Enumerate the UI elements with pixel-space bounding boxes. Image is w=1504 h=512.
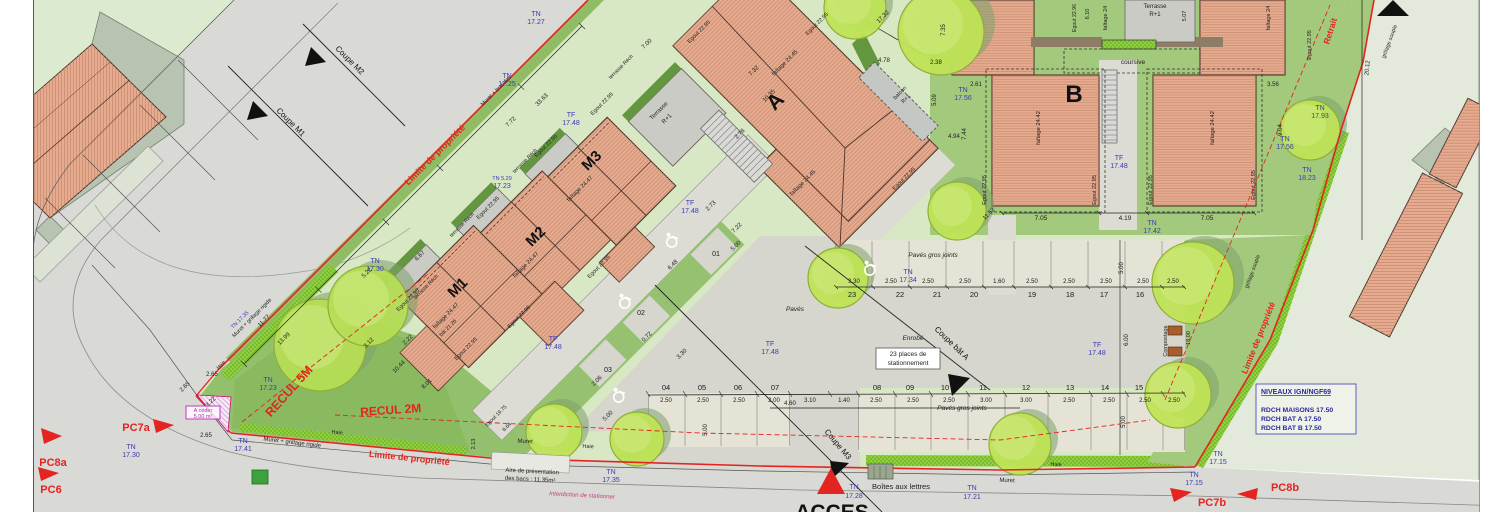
svg-text:4.78: 4.78: [878, 58, 890, 64]
svg-text:17.42: 17.42: [1143, 228, 1161, 235]
svg-text:RDCH MAISONS 17.50: RDCH MAISONS 17.50: [1261, 407, 1333, 414]
svg-text:TN: TN: [238, 438, 247, 445]
svg-text:19: 19: [1028, 290, 1036, 299]
svg-text:2.50: 2.50: [1168, 398, 1180, 404]
svg-text:10: 10: [941, 383, 949, 392]
svg-text:TF: TF: [686, 200, 695, 207]
svg-text:17.30: 17.30: [122, 452, 140, 459]
svg-text:Terrasse: Terrasse: [1143, 4, 1167, 10]
svg-text:23: 23: [848, 290, 856, 299]
svg-text:2.13: 2.13: [471, 439, 477, 450]
svg-text:TF: TF: [567, 112, 576, 119]
svg-text:faîtage 24.42: faîtage 24.42: [1210, 111, 1216, 145]
svg-text:16: 16: [1136, 290, 1144, 299]
svg-text:TN: TN: [502, 73, 511, 80]
svg-text:17.48: 17.48: [681, 208, 699, 215]
svg-text:TF: TF: [1115, 155, 1124, 162]
svg-text:NIVEAUX IGN/NGF69: NIVEAUX IGN/NGF69: [1261, 389, 1331, 396]
svg-text:TN: TN: [606, 469, 615, 476]
svg-text:08: 08: [873, 383, 881, 392]
svg-text:17.41: 17.41: [234, 446, 252, 453]
svg-text:7.44: 7.44: [962, 128, 968, 140]
svg-text:2.50: 2.50: [1139, 398, 1151, 404]
svg-text:17.23: 17.23: [259, 385, 277, 392]
svg-text:2.50: 2.50: [943, 398, 955, 404]
svg-text:2.50: 2.50: [1026, 279, 1038, 285]
svg-text:Boîtes aux lettres: Boîtes aux lettres: [872, 482, 930, 491]
svg-text:2.50: 2.50: [697, 398, 709, 404]
svg-text:6.10: 6.10: [1085, 9, 1091, 20]
svg-text:PC7b: PC7b: [1198, 497, 1226, 509]
svg-text:14: 14: [1101, 383, 1109, 392]
svg-text:TN: TN: [958, 87, 967, 94]
svg-text:22: 22: [896, 290, 904, 299]
svg-text:17: 17: [1100, 290, 1108, 299]
svg-text:TN: TN: [1213, 451, 1222, 458]
svg-text:faîtage 24: faîtage 24: [1103, 6, 1109, 30]
svg-text:2.50: 2.50: [1137, 279, 1149, 285]
svg-text:4.94: 4.94: [948, 134, 960, 140]
svg-text:4.60: 4.60: [784, 401, 796, 407]
svg-text:2.65: 2.65: [206, 372, 218, 378]
svg-text:07: 07: [771, 383, 779, 392]
svg-text:01: 01: [712, 251, 720, 258]
svg-text:2.65: 2.65: [200, 433, 212, 439]
svg-text:7.05: 7.05: [1035, 215, 1048, 222]
svg-text:TF: TF: [766, 341, 775, 348]
svg-text:B: B: [1065, 81, 1082, 108]
svg-text:TN: TN: [263, 377, 272, 384]
svg-text:TN: TN: [903, 269, 912, 276]
svg-text:3.10: 3.10: [804, 398, 816, 404]
svg-text:5.07: 5.07: [1182, 11, 1188, 22]
svg-text:3.00: 3.00: [980, 398, 992, 404]
svg-text:4.19: 4.19: [1119, 215, 1132, 222]
svg-text:ACCES: ACCES: [795, 501, 869, 512]
svg-text:17.48: 17.48: [544, 344, 562, 351]
svg-text:17.48: 17.48: [761, 349, 779, 356]
svg-text:Egout 22.95: Egout 22.95: [1251, 170, 1257, 200]
svg-text:17.27: 17.27: [527, 19, 545, 26]
svg-text:11: 11: [979, 383, 987, 392]
svg-text:18: 18: [1066, 290, 1074, 299]
svg-text:17.56: 17.56: [954, 95, 972, 102]
svg-text:TN: TN: [1315, 105, 1324, 112]
svg-text:2.38: 2.38: [930, 60, 942, 66]
svg-text:TN: TN: [967, 485, 976, 492]
svg-text:Egout 22.95: Egout 22.95: [1307, 30, 1313, 60]
svg-text:Enrobé: Enrobé: [903, 335, 924, 342]
svg-text:3.00: 3.00: [1020, 398, 1032, 404]
svg-text:TF: TF: [549, 336, 558, 343]
svg-text:TN: TN: [849, 484, 858, 491]
svg-text:17.28: 17.28: [845, 493, 863, 500]
svg-text:2.50: 2.50: [885, 279, 897, 285]
svg-text:18.00: 18.00: [1186, 331, 1192, 345]
svg-text:6.00: 6.00: [1124, 334, 1130, 346]
svg-text:TF: TF: [1093, 342, 1102, 349]
svg-text:2.50: 2.50: [922, 279, 934, 285]
svg-text:5.00: 5.00: [1121, 416, 1127, 428]
svg-text:17.48: 17.48: [1088, 350, 1106, 357]
svg-text:2.50: 2.50: [1103, 398, 1115, 404]
svg-text:TN: TN: [1147, 220, 1156, 227]
svg-text:2.50: 2.50: [1063, 279, 1075, 285]
svg-text:17.25: 17.25: [498, 81, 516, 88]
svg-text:17.15: 17.15: [1185, 480, 1203, 487]
svg-text:17.21: 17.21: [963, 494, 981, 501]
svg-text:12: 12: [1022, 383, 1030, 392]
svg-text:9.04: 9.04: [1278, 124, 1284, 136]
svg-text:RDCH BAT B 17.50: RDCH BAT B 17.50: [1261, 425, 1322, 432]
svg-text:Muret: Muret: [999, 478, 1015, 485]
svg-text:1.40: 1.40: [838, 398, 850, 404]
svg-text:1.60: 1.60: [993, 279, 1005, 285]
svg-text:TN: TN: [126, 444, 135, 451]
svg-text:17.48: 17.48: [1110, 163, 1128, 170]
svg-text:Egout 22.95: Egout 22.95: [1148, 175, 1154, 205]
svg-text:17.48: 17.48: [562, 120, 580, 127]
svg-text:2.50: 2.50: [1063, 398, 1075, 404]
svg-text:3.56: 3.56: [1267, 82, 1279, 88]
svg-text:Pavés gros joints: Pavés gros joints: [908, 252, 958, 259]
svg-text:17.34: 17.34: [899, 277, 917, 284]
svg-text:13: 13: [1066, 383, 1074, 392]
svg-text:TN 5.29: TN 5.29: [492, 176, 512, 182]
svg-text:PC6: PC6: [40, 484, 61, 496]
svg-text:R+1: R+1: [1149, 12, 1161, 18]
svg-text:Haie: Haie: [331, 430, 343, 437]
svg-text:2.00: 2.00: [768, 398, 780, 404]
svg-text:PC8b: PC8b: [1271, 482, 1299, 494]
svg-text:2.50: 2.50: [1167, 279, 1179, 285]
svg-text:5.00: 5.00: [703, 424, 709, 436]
svg-text:stationnement: stationnement: [888, 360, 929, 367]
svg-text:2.50: 2.50: [1100, 279, 1112, 285]
svg-text:TN: TN: [1189, 472, 1198, 479]
svg-text:Egout 22.95: Egout 22.95: [1092, 175, 1098, 205]
svg-text:7.35: 7.35: [941, 24, 947, 36]
svg-text:3.30: 3.30: [848, 279, 860, 285]
svg-text:Haie: Haie: [1050, 462, 1062, 468]
svg-text:5.00 m²: 5.00 m²: [194, 414, 213, 420]
svg-text:2.50: 2.50: [660, 398, 672, 404]
svg-text:17.23: 17.23: [493, 183, 511, 190]
svg-text:2.50: 2.50: [870, 398, 882, 404]
svg-text:02: 02: [637, 310, 645, 317]
svg-text:06: 06: [734, 383, 742, 392]
svg-text:15: 15: [1135, 383, 1143, 392]
svg-text:faîtage 24.42: faîtage 24.42: [1036, 111, 1042, 145]
svg-text:TN: TN: [1280, 136, 1289, 143]
svg-text:coursive: coursive: [1121, 59, 1146, 66]
svg-text:PC7a: PC7a: [122, 422, 150, 434]
svg-text:faîtage 24: faîtage 24: [1266, 6, 1272, 30]
svg-text:20: 20: [970, 290, 978, 299]
svg-text:04: 04: [662, 383, 670, 392]
svg-text:2.50: 2.50: [907, 398, 919, 404]
svg-text:TN: TN: [1302, 167, 1311, 174]
svg-text:PC8a: PC8a: [39, 457, 67, 469]
svg-text:2.50: 2.50: [959, 279, 971, 285]
svg-text:Egout 22.96: Egout 22.96: [1072, 4, 1078, 32]
svg-text:TN: TN: [531, 11, 540, 18]
svg-text:Compostage: Compostage: [1163, 325, 1169, 356]
svg-text:RDCH BAT A 17.50: RDCH BAT A 17.50: [1261, 416, 1321, 423]
svg-text:03: 03: [604, 367, 612, 374]
svg-text:23 places de: 23 places de: [890, 351, 927, 358]
svg-text:21: 21: [933, 290, 941, 299]
svg-text:7.05: 7.05: [1201, 215, 1214, 222]
svg-text:5.09: 5.09: [932, 94, 938, 106]
svg-text:TN: TN: [370, 258, 379, 265]
svg-text:Egout 22.95: Egout 22.95: [982, 175, 988, 205]
svg-text:17.35: 17.35: [602, 477, 620, 484]
svg-text:Haie: Haie: [582, 444, 594, 451]
svg-text:2.50: 2.50: [733, 398, 745, 404]
svg-text:Pavés gros joints: Pavés gros joints: [937, 405, 987, 412]
svg-text:17.15: 17.15: [1209, 459, 1227, 466]
svg-text:09: 09: [906, 383, 914, 392]
svg-text:17.56: 17.56: [1276, 144, 1294, 151]
svg-text:2.61: 2.61: [970, 82, 982, 88]
svg-text:Pavés: Pavés: [786, 306, 805, 313]
svg-text:17.93: 17.93: [1311, 113, 1329, 120]
svg-text:05: 05: [698, 383, 706, 392]
svg-text:Muret: Muret: [517, 439, 533, 446]
svg-text:18.23: 18.23: [1298, 175, 1316, 182]
